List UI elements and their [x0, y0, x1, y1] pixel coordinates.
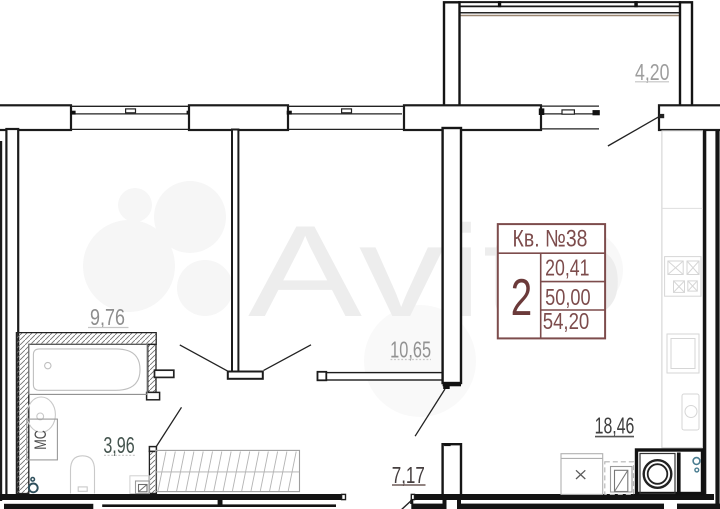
- svg-text:10,65: 10,65: [390, 338, 431, 363]
- svg-text:20,41: 20,41: [545, 255, 589, 281]
- svg-text:МС: МС: [31, 430, 50, 450]
- svg-text:9,76: 9,76: [90, 305, 125, 331]
- svg-text:54,20: 54,20: [543, 309, 590, 334]
- svg-text:Кв. №38: Кв. №38: [513, 225, 588, 252]
- svg-text:18,46: 18,46: [595, 414, 635, 440]
- svg-text:2: 2: [511, 268, 532, 326]
- svg-text:50,00: 50,00: [545, 285, 590, 311]
